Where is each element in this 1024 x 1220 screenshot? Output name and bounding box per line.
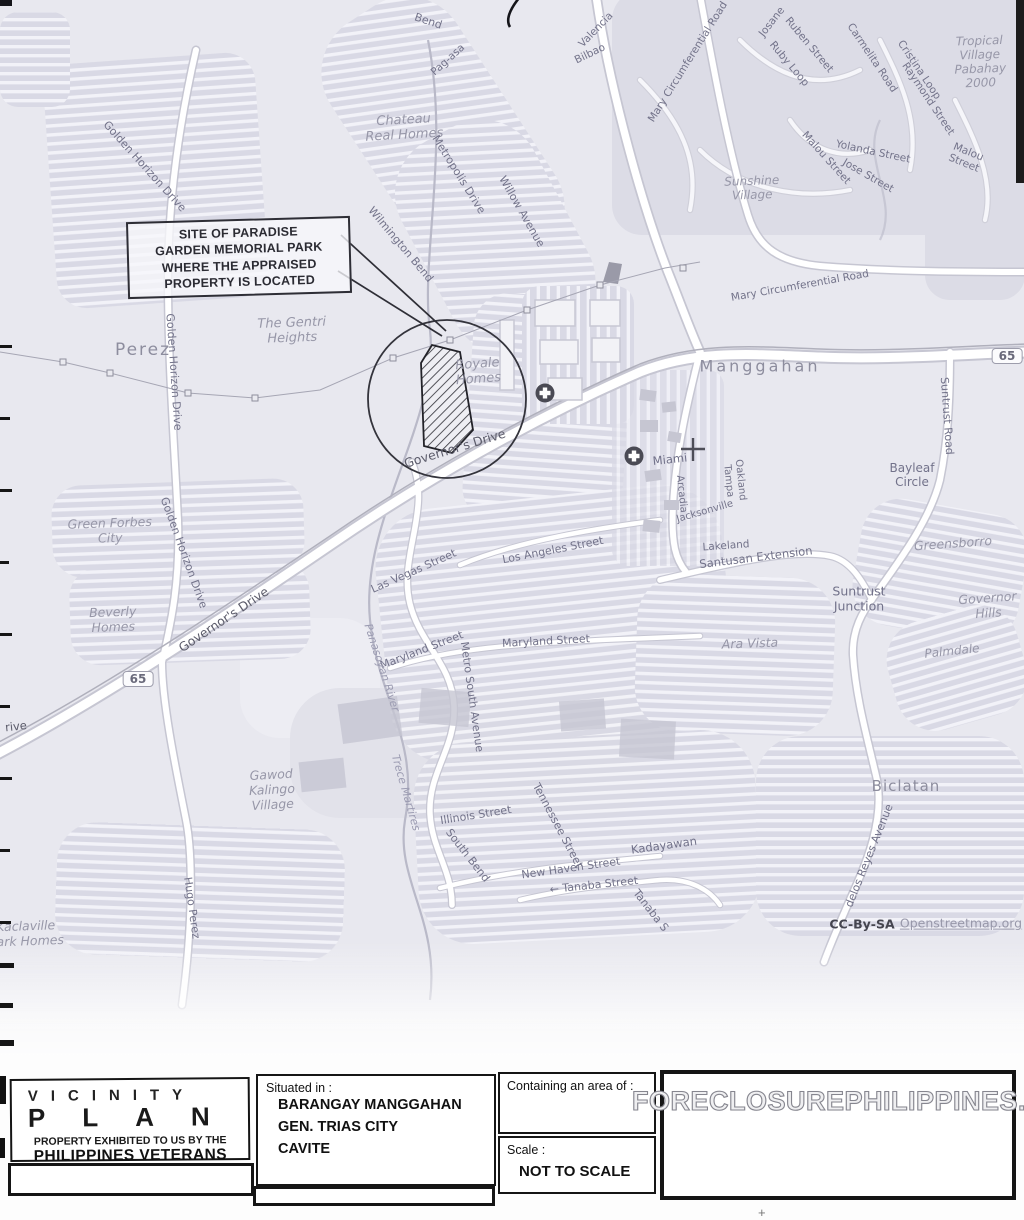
- map-label: CC-By-SA: [829, 918, 894, 933]
- map-label: Willow Avenue: [495, 174, 546, 250]
- map-label: Bilbao: [573, 41, 608, 66]
- map-label: Valencia: [576, 10, 615, 50]
- map-label: Illinois Street: [440, 804, 513, 828]
- map-label: Bend: [413, 11, 444, 32]
- map-label: Chateau Real Homes: [364, 111, 443, 146]
- map-label: Raymond Street: [899, 60, 957, 137]
- map-label: Golden Horizon Drive: [157, 496, 209, 611]
- scan-binding-tick: [0, 1040, 14, 1046]
- map-label: Arcadia: [673, 475, 689, 514]
- map-label: Ruben Street: [782, 15, 836, 75]
- map-label: Palmdale: [924, 641, 980, 661]
- map-label: Biclatan: [872, 778, 941, 796]
- map-label: Las Vegas Street: [369, 547, 458, 596]
- plan-title-box: VICINITY PLAN PROPERTY EXHIBITED TO US B…: [10, 1077, 251, 1162]
- map-label: Tropical Village Pabahay 2000: [953, 33, 1007, 91]
- site-callout-box: SITE OF PARADISE GARDEN MEMORIAL PARK WH…: [126, 216, 352, 299]
- map-label: Openstreetmap.org: [900, 917, 1022, 932]
- map-label: Ara Vista: [722, 636, 779, 653]
- map-label: Ruby Loop: [767, 39, 812, 89]
- map-label: Suntrust Road: [937, 377, 955, 456]
- map-label: Oakland: [732, 459, 748, 501]
- map-label: Royale Homes: [454, 355, 501, 389]
- route-shield: 65: [123, 671, 154, 687]
- map-label: New Haven Street: [521, 856, 622, 883]
- map-label: Perez: [115, 340, 171, 360]
- map-label: Mary Circumferential Road: [730, 268, 870, 304]
- map-label: Mary Circumferential Road: [646, 0, 731, 125]
- map-label: Los Angeles Street: [501, 535, 604, 567]
- pen-mark: +: [758, 1205, 766, 1220]
- situated-barangay: BARANGAY MANGGAHAN: [278, 1095, 486, 1117]
- scale-box: Scale : NOT TO SCALE: [498, 1136, 656, 1194]
- map-label: delos Reyes Avenue: [843, 803, 896, 910]
- map-label: Carmelita Road: [844, 21, 899, 95]
- scan-artifact: [0, 1076, 6, 1104]
- map-label: Bayleaf Circle: [890, 461, 935, 489]
- map-label: Maryland Street: [502, 633, 590, 651]
- map-label: Tanaba S: [630, 887, 671, 934]
- scan-binding-tick: [0, 849, 10, 852]
- scanned-vicinity-plan-document: { "colors": {"map_bg": "#e8e8ef", "road_…: [0, 0, 1024, 1216]
- map-label: Trece Martires: [388, 753, 422, 832]
- scan-binding-tick: [0, 561, 9, 564]
- scan-binding-tick: [0, 777, 12, 780]
- map-label: Suntrust Junction: [832, 584, 885, 614]
- map-label: Manggahan: [700, 358, 821, 377]
- map-label: Governor's Drive: [176, 584, 272, 655]
- plan-title-word2: PLAN: [12, 1103, 248, 1131]
- map-label: Governor's Drive: [402, 427, 507, 472]
- map-label: Santusan Extension: [699, 544, 814, 571]
- map-label-layer: BendPag-asaChateau Real HomesWilmington …: [0, 0, 1024, 1062]
- vicinity-map: BendPag-asaChateau Real HomesWilmington …: [0, 0, 1024, 1062]
- empty-field-box-left: [8, 1163, 254, 1196]
- map-label: Wilmington Bend: [365, 205, 436, 286]
- map-label: rive: [4, 719, 27, 735]
- scan-binding-tick: [0, 489, 12, 492]
- map-label: Green Forbes City: [67, 515, 152, 547]
- map-label: The Gentri Heights: [257, 314, 327, 347]
- foreclosurephilippines-watermark: FORECLOSUREPHILIPPINES.COM: [632, 1086, 1024, 1117]
- title-block: VICINITY PLAN PROPERTY EXHIBITED TO US B…: [0, 1062, 1024, 1216]
- map-label: ← Tanaba Street: [549, 875, 639, 897]
- map-label: Josane: [756, 5, 787, 40]
- map-label: Golden Horizon Drive: [100, 119, 188, 215]
- map-label: South Bend: [442, 827, 491, 885]
- scan-binding-tick: [0, 345, 12, 348]
- map-label: Golden Horizon Drive: [162, 313, 183, 431]
- map-label: Tampa: [720, 464, 735, 498]
- scan-binding-tick: [0, 1003, 13, 1008]
- map-label: Miami: [652, 451, 688, 468]
- map-label: Governor Hills: [958, 589, 1018, 622]
- map-label: Greensborro: [914, 534, 993, 554]
- map-label: Tennessee Street: [529, 781, 585, 870]
- map-bottom-fade: [0, 940, 1024, 1062]
- situated-province: CAVITE: [278, 1139, 486, 1161]
- scan-edge-band: [1016, 0, 1024, 183]
- map-label: Metro South Avenue: [457, 641, 485, 753]
- map-label: Panasoyan River: [361, 622, 402, 713]
- scan-binding-tick: [0, 417, 10, 420]
- scan-artifact: [0, 1138, 5, 1158]
- map-label: Malou Street: [934, 136, 997, 181]
- scale-label: Scale :: [507, 1143, 647, 1157]
- situated-box: Situated in : BARANGAY MANGGAHAN GEN. TR…: [256, 1074, 496, 1186]
- map-label: Maryland Street: [379, 629, 466, 673]
- map-label: Beverly Homes: [89, 604, 137, 635]
- map-label: Metropolis Drive: [429, 133, 488, 216]
- map-label: Jose Street: [840, 156, 895, 195]
- map-label: Yolanda Street: [835, 138, 912, 166]
- map-label: Cristina Loop: [895, 38, 944, 102]
- route-shield: 65: [992, 348, 1023, 364]
- scale-value: NOT TO SCALE: [519, 1163, 647, 1180]
- map-label: Kadayawan: [630, 835, 698, 858]
- scan-binding-tick: [0, 963, 14, 968]
- map-label: Hugo Perez: [180, 876, 202, 939]
- area-label: Containing an area of :: [507, 1079, 633, 1093]
- map-label: Jacksonville: [675, 498, 734, 525]
- map-label: Malou Street: [799, 129, 853, 187]
- situated-label: Situated in :: [266, 1081, 486, 1095]
- situated-city: GEN. TRIAS CITY: [278, 1117, 486, 1139]
- map-label: Gawod Kalingo Village: [248, 767, 296, 814]
- scan-binding-tick: [0, 633, 12, 636]
- scan-binding-tick: [0, 705, 10, 708]
- scan-binding-tick: [0, 921, 11, 924]
- empty-field-box-mid: [253, 1186, 495, 1206]
- map-label: Pag-asa: [429, 42, 468, 79]
- map-label: Lakeland: [702, 538, 750, 554]
- map-label: Sunshine Village: [724, 173, 780, 203]
